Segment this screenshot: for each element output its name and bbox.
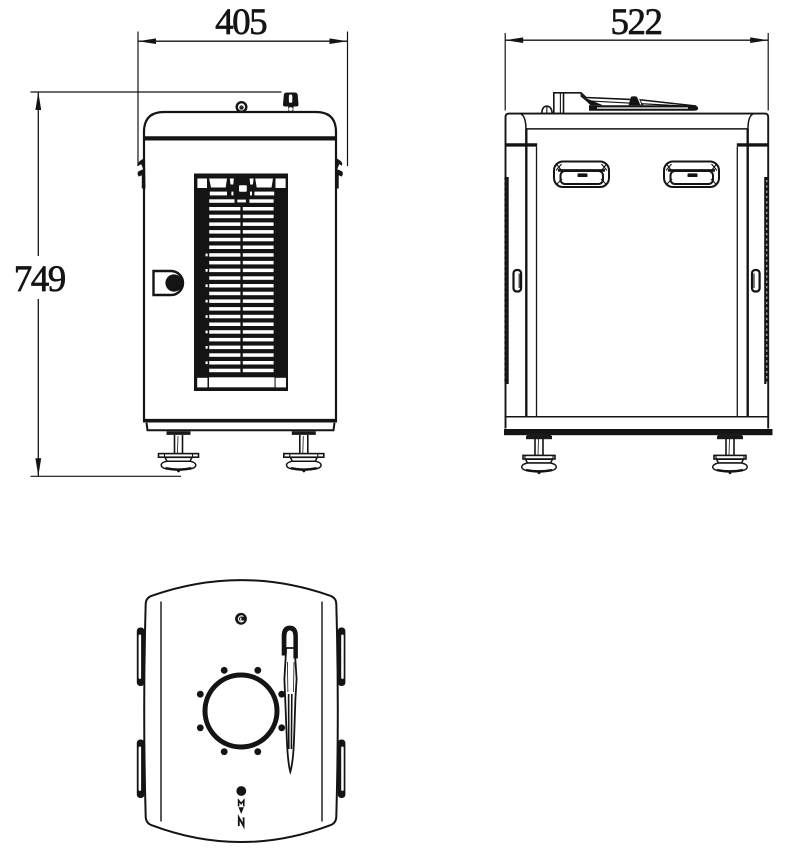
svg-text:749: 749 [14,259,65,300]
svg-text:522: 522 [611,2,662,43]
svg-text:405: 405 [215,2,267,43]
